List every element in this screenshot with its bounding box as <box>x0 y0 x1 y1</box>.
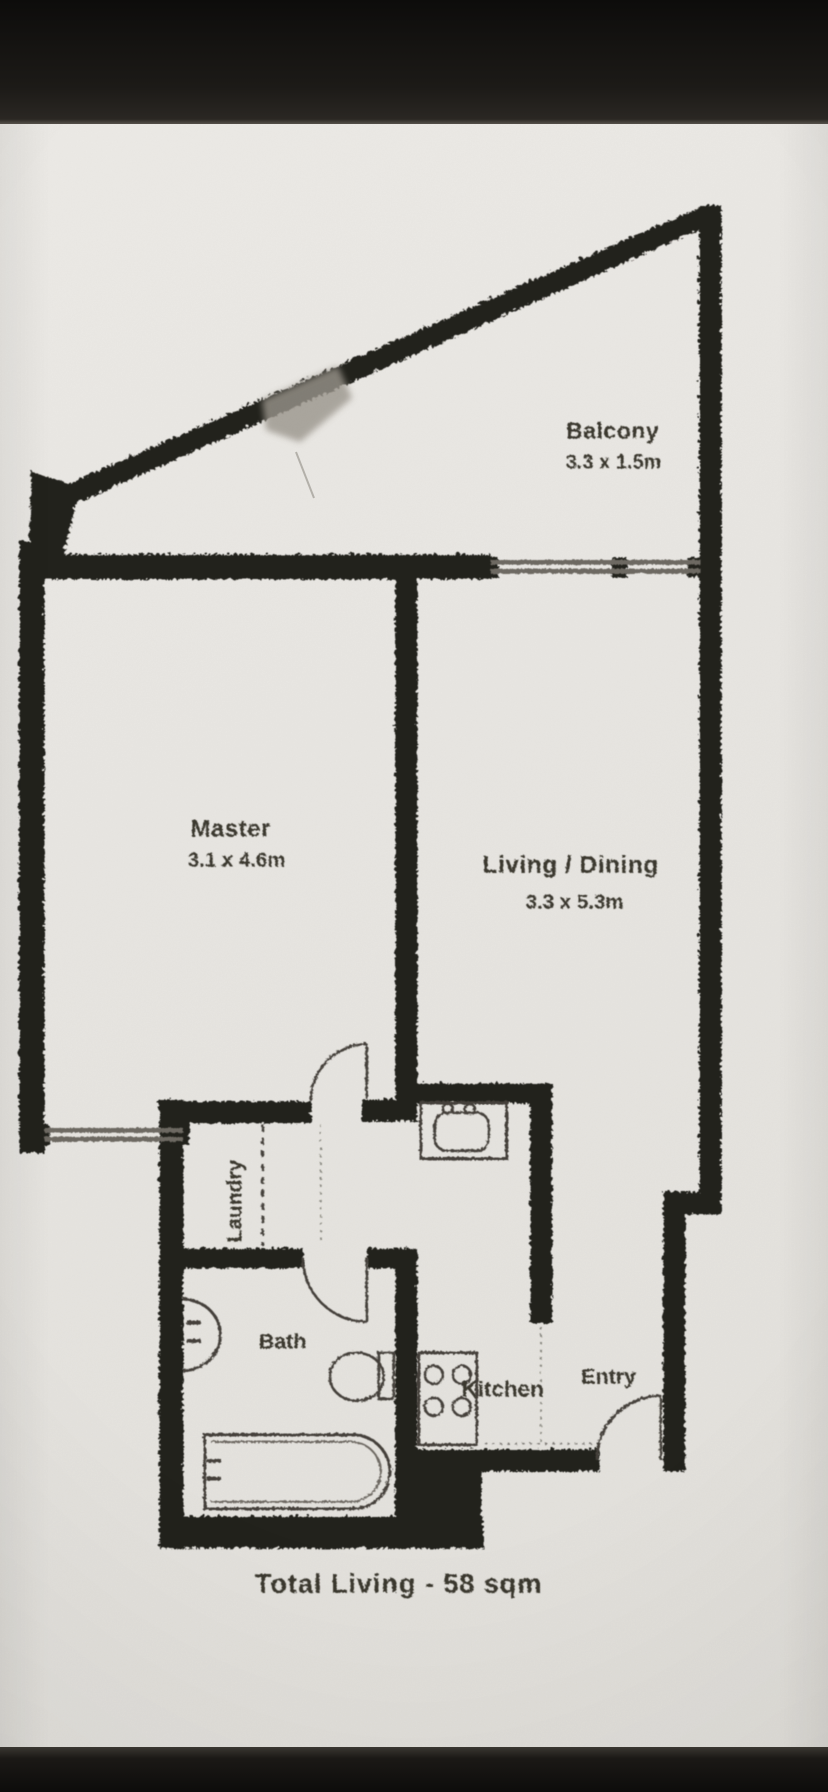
master-door-arc <box>310 1043 366 1100</box>
stove-burner-3 <box>424 1397 442 1415</box>
wall-bath-top-stub <box>366 1247 394 1267</box>
living-label: Living / Dining <box>482 851 658 878</box>
floorplan-drawing: Balcony 3.3 x 1.5m Master 3.1 x 4.6m Liv… <box>0 0 828 1792</box>
wall-bath-kitchen <box>394 1247 416 1515</box>
wall-master-bottom <box>182 1100 310 1122</box>
window-balcony-door-line-2 <box>490 568 700 573</box>
bath-sink-icon <box>182 1298 220 1370</box>
balcony-label: Balcony <box>566 417 659 443</box>
laundry-label: Laundry <box>223 1159 246 1242</box>
wall-smudge <box>262 366 352 442</box>
wall-bath-top-left <box>262 1247 302 1267</box>
master-dims: 3.1 x 4.6m <box>187 848 285 871</box>
bath-label: Bath <box>258 1329 306 1353</box>
total-living-label: Total Living - 58 sqm <box>254 1568 542 1598</box>
wall-kitchen-right <box>529 1082 551 1322</box>
wall-left-main <box>18 540 43 1152</box>
entry-door-arc <box>596 1395 660 1459</box>
wall-entry-bottom <box>477 1448 598 1470</box>
wall-right-lower <box>662 1191 684 1470</box>
toilet-tank-icon <box>378 1352 393 1398</box>
wall-left-lower <box>158 1098 182 1547</box>
balcony-dims: 3.3 x 1.5m <box>565 451 661 473</box>
master-label: Master <box>190 815 270 842</box>
bath-door-arc <box>302 1257 366 1321</box>
wall-right-upper <box>698 204 720 1213</box>
stove-burner-1 <box>424 1365 442 1383</box>
kitchen-label: Kitchen <box>461 1376 544 1401</box>
wall-master-living-divider <box>394 556 416 1120</box>
windows <box>44 559 700 1141</box>
wall-bottom <box>158 1515 482 1547</box>
balcony-faint-mark <box>296 452 314 498</box>
toilet-bowl-icon <box>329 1352 383 1400</box>
photo-dark-bar-bottom <box>0 1747 828 1792</box>
floorplan-paper: Balcony 3.3 x 1.5m Master 3.1 x 4.6m Liv… <box>0 0 828 1792</box>
bathtub-inner-line <box>210 1441 380 1501</box>
entry-label: Entry <box>581 1364 636 1388</box>
kitchen-sink-basin <box>434 1112 488 1150</box>
wall-laundry-bottom <box>182 1247 262 1267</box>
room-labels: Balcony 3.3 x 1.5m Master 3.1 x 4.6m Liv… <box>187 417 661 1598</box>
floorplan-photo: Balcony 3.3 x 1.5m Master 3.1 x 4.6m Liv… <box>0 0 828 1792</box>
photo-dark-bar-top <box>0 0 828 124</box>
bathtub-icon <box>204 1434 389 1508</box>
window-balcony-door-line-1 <box>490 559 700 564</box>
window-master-line-1 <box>44 1127 182 1132</box>
wall-top-solid <box>20 553 490 578</box>
window-master-line-2 <box>44 1136 182 1141</box>
living-dims: 3.3 x 5.3m <box>525 890 623 913</box>
